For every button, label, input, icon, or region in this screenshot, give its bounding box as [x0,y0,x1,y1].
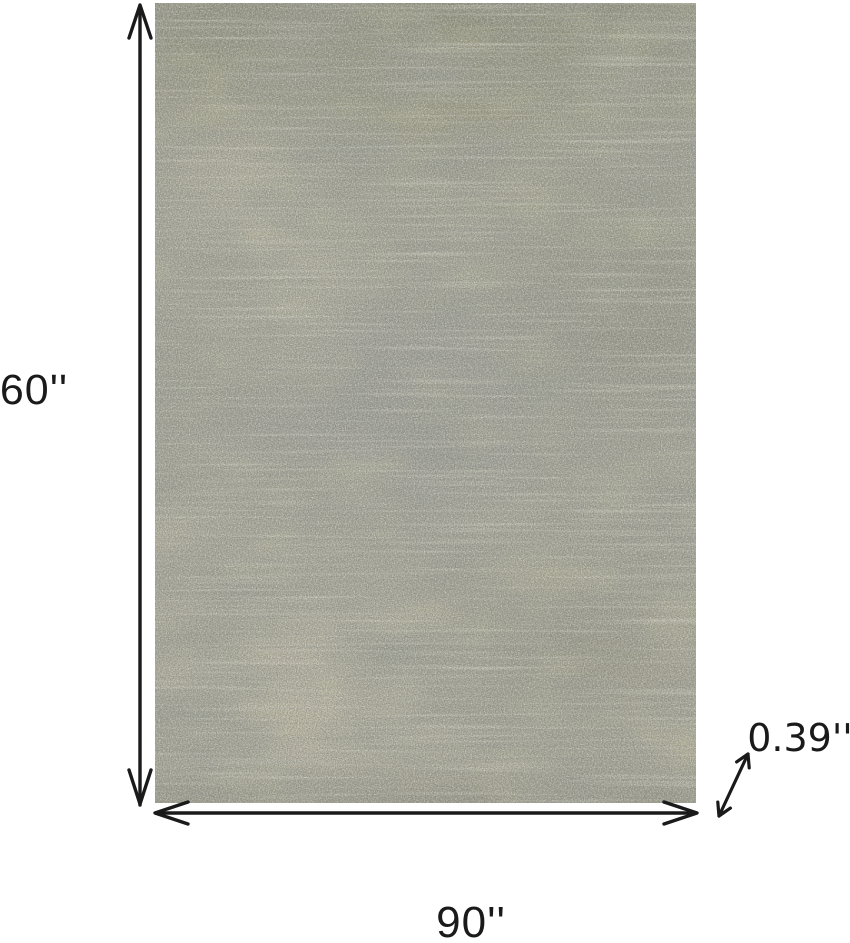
height-dimension-arrow [118,0,164,812]
dimension-diagram: 60'' 90'' 0.39'' [0,0,850,943]
width-dimension-label: 90'' [401,898,541,943]
rug-image [155,3,696,803]
height-dimension-label: 60'' [0,366,74,415]
width-dimension-arrow [150,791,702,835]
thickness-dimension-label: 0.39'' [742,716,850,760]
rug-texture [155,3,696,803]
